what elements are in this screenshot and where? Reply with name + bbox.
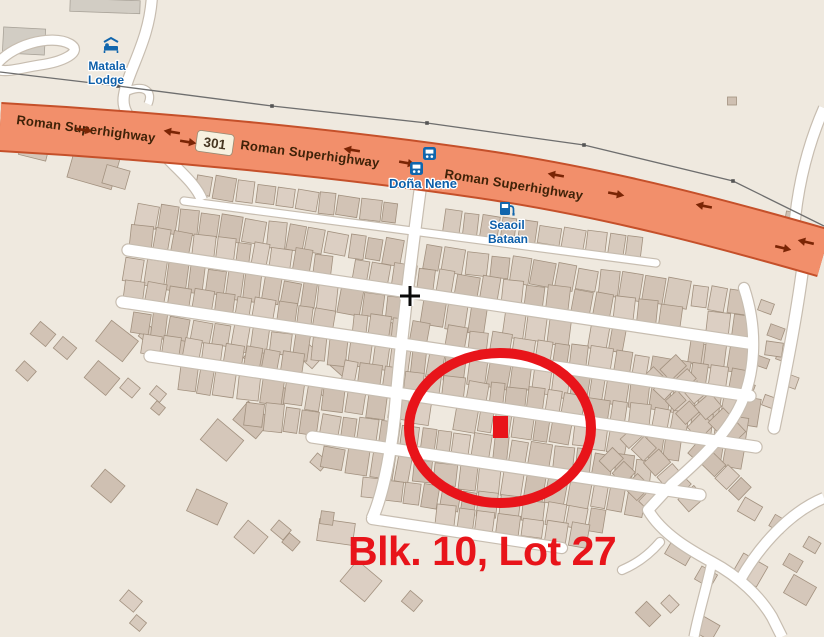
bus-stop-icon <box>410 162 423 175</box>
poi-label-lodge: Lodge <box>88 73 124 87</box>
poi-label-matala: Matala <box>88 59 126 73</box>
poi-label-dona-nene: Doña Nene <box>389 176 457 191</box>
annotation-lot-marker <box>493 416 508 438</box>
poi-label-bataan: Bataan <box>488 232 528 246</box>
map-viewport[interactable]: Roman Superhighway Roman Superhighway Ro… <box>0 0 824 637</box>
route-shield-number: 301 <box>203 134 228 152</box>
bus-stop-icon <box>423 147 436 160</box>
annotation-label: Blk. 10, Lot 27 <box>348 528 616 574</box>
map-canvas[interactable]: Roman Superhighway Roman Superhighway Ro… <box>0 0 824 637</box>
poi-label-seaoil: Seaoil <box>489 218 524 232</box>
